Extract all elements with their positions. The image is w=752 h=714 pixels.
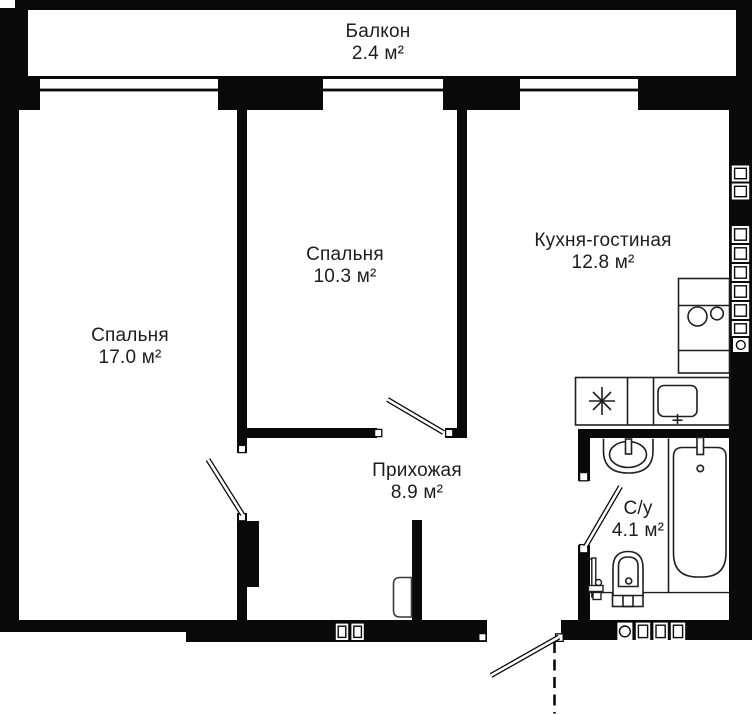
window-bedroom2-frame [323,89,443,92]
jamb-bedroom2-right [446,429,453,436]
entrance-door-leaf [491,637,559,676]
room-area: 2.4 м² [346,43,411,65]
room-area: 8.9 м² [372,482,462,504]
valve-icon [589,586,604,592]
room-label-kitchen-living: Кухня-гостиная 12.8 м² [534,230,671,274]
room-name: Кухня-гостиная [534,230,671,252]
bedroom2-door-leaf [388,400,444,433]
hallway-boiler-icon [394,578,412,618]
room-name: Прихожая [372,460,462,482]
window-bedroom2 [323,79,443,110]
washbasin-tap-icon [626,439,632,454]
room-label-hallway: Прихожая 8.9 м² [372,460,462,504]
wall-balcony-top [15,0,752,10]
room-area: 10.3 м² [306,266,384,288]
room-name: Балкон [346,21,411,43]
jamb-bathroom-top [580,473,588,481]
wall-balcony-right [736,0,752,80]
vent-shafts-right-wall [732,166,749,353]
wall-hall-stub [412,520,422,624]
jamb-bedroom1-top [238,445,245,452]
room-label-bedroom-2: Спальня 10.3 м² [306,244,384,288]
wall-left [0,110,19,632]
kitchen-counter [576,378,730,426]
room-name: Спальня [91,325,169,347]
window-bedroom1 [40,79,218,110]
wall-pier-hall [247,521,259,587]
room-label-bedroom-1: Спальня 17.0 м² [91,325,169,369]
floor-plan: Балкон 2.4 м² Спальня 17.0 м² Спальня 10… [0,0,752,714]
room-area: 17.0 м² [91,347,169,369]
windows [40,79,638,110]
wall-bottom-left [0,620,186,632]
bathtub [669,438,727,593]
toilet [613,552,644,607]
wall-kitchen-bathroom [578,429,752,438]
jamb-entrance-left [479,634,486,641]
jamb-bedroom2-left [375,429,382,436]
window-kitchen [520,79,638,110]
wall-bedroom1-hall-lower [237,513,247,625]
wall-bedroom1-bedroom2-upper [237,108,247,453]
wall-bedroom2-kitchen [457,108,467,438]
kitchen-fixtures [576,279,730,426]
wall-bedroom2-hall [243,428,377,438]
room-label-bathroom: С/у 4.1 м² [612,498,664,542]
room-name: С/у [612,498,664,520]
washbasin [604,439,654,473]
room-area: 12.8 м² [534,252,671,274]
window-bedroom1-frame [40,89,218,92]
wall-bathroom-left-lower [578,545,590,620]
bedroom1-door-leaf [208,460,243,515]
room-name: Спальня [306,244,384,266]
wall-balcony-left [0,8,28,78]
stove-counter [679,279,730,374]
bathtub-tap-icon [697,438,704,455]
room-area: 4.1 м² [612,520,664,542]
window-kitchen-frame [520,89,638,92]
room-label-balcony: Балкон 2.4 м² [346,21,411,65]
